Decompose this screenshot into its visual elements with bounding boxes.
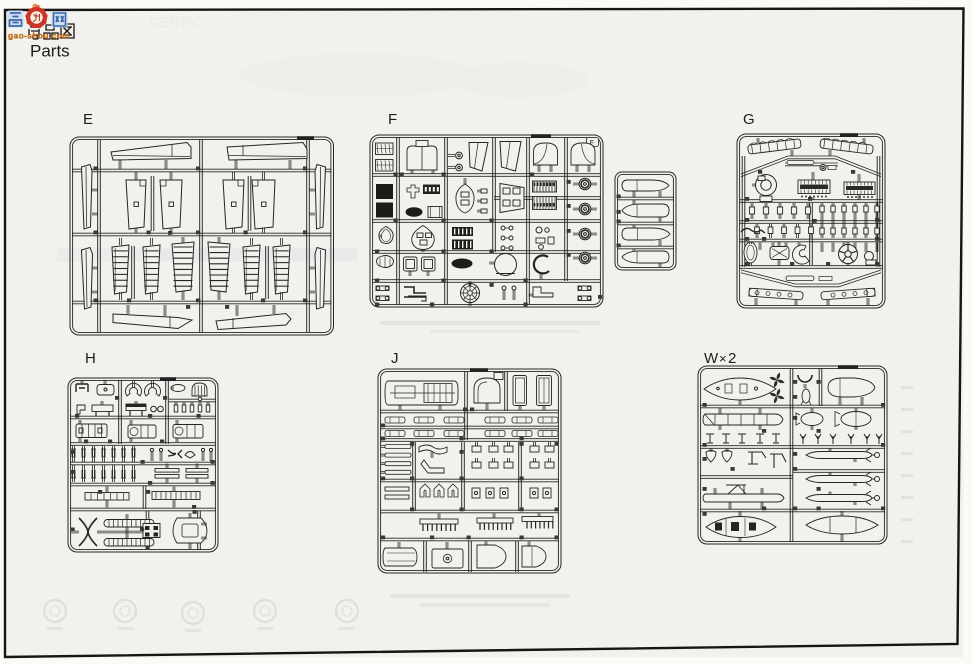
svg-text:W: W xyxy=(704,350,719,367)
svg-text:CENTIC: CENTIC xyxy=(150,14,202,30)
svg-text:gao-shou.com: gao-shou.com xyxy=(8,31,70,41)
svg-text:E: E xyxy=(83,111,93,128)
svg-text:J: J xyxy=(391,350,399,367)
svg-text:G: G xyxy=(743,111,755,128)
svg-text:Parts: Parts xyxy=(30,42,70,61)
svg-text:H: H xyxy=(85,350,96,367)
svg-text:2: 2 xyxy=(728,350,736,367)
svg-text:F: F xyxy=(388,111,397,128)
svg-text:×: × xyxy=(719,351,727,366)
